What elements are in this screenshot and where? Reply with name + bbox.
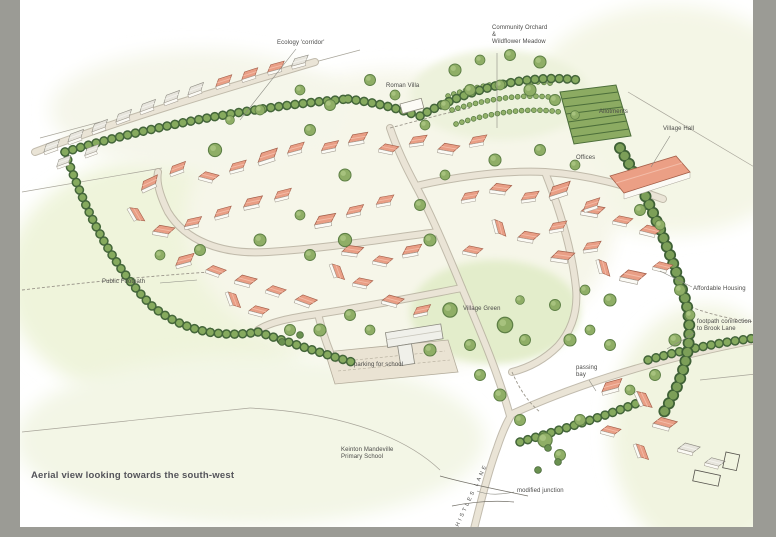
page-caption: Aerial view looking towards the south-we…: [31, 470, 234, 481]
label-community-orchard: Community Orchard & Wildflower Meadow: [492, 25, 547, 46]
masterplan-page: Ecology 'corridor' Community Orchard & W…: [0, 0, 776, 537]
label-footpath-connection: footpath connection to Brook Lane: [697, 319, 751, 333]
label-offices: Offices: [576, 155, 595, 162]
label-roman-villa: Roman Villa: [386, 83, 419, 90]
label-village-hall: Village Hall: [663, 126, 694, 133]
frame-bottom: [0, 527, 776, 537]
label-village-green: Village Green: [463, 306, 501, 313]
frame-left: [0, 0, 20, 537]
label-allotments: Allotments: [599, 109, 628, 116]
label-modified-junction: modified junction: [517, 488, 564, 495]
label-ecology-corridor: Ecology 'corridor': [277, 40, 324, 47]
label-parking-for-school: parking for school: [354, 362, 403, 369]
label-passing-bay: passing bay: [576, 365, 597, 379]
frame-right: [753, 0, 776, 537]
label-affordable-housing: Affordable Housing: [693, 286, 746, 293]
label-public-footpath: Public Footpath: [102, 279, 145, 286]
label-primary-school: Keinton Mandeville Primary School: [341, 447, 394, 461]
